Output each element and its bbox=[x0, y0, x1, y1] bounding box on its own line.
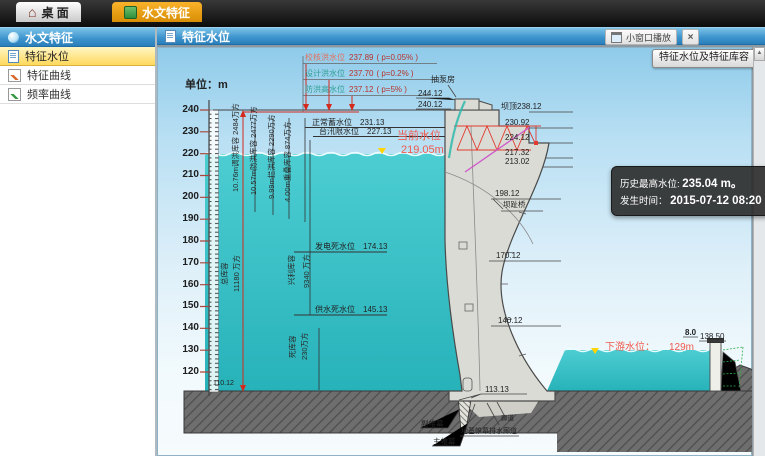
downstream-name: 下游水位： bbox=[605, 342, 655, 353]
level-value: 237.12 bbox=[349, 85, 373, 94]
app-window: ⌂ 桌 面 水文特征 水文特征 特征水位 特征曲线 频率曲线 特征水位 bbox=[0, 0, 765, 456]
hydro-tab-icon bbox=[124, 6, 137, 19]
total-storage-value: 11180 万方 bbox=[233, 255, 242, 292]
level-p: ( p=0.2% ) bbox=[376, 69, 413, 78]
page-icon bbox=[8, 50, 19, 63]
level-value: 145.13 bbox=[363, 305, 387, 314]
scroll-up-icon[interactable]: ▲ bbox=[754, 47, 765, 61]
storage-col-label: 9.99m拦洪库容 2290万方 bbox=[268, 114, 277, 199]
history-max-value: 235.04 m。 bbox=[682, 178, 742, 190]
elevation-170: 170.12 bbox=[496, 252, 520, 260]
sidebar-item-label: 特征曲线 bbox=[27, 67, 71, 83]
axis-tick: 120 bbox=[173, 367, 199, 377]
level-name: 防洪高水位 bbox=[305, 85, 345, 94]
power-dead-level-row: 发电死水位174.13 bbox=[315, 243, 387, 251]
tab-desktop-label: 桌 面 bbox=[41, 4, 68, 21]
main-curtain-label: 主帷幕 bbox=[433, 438, 456, 446]
downstream-value: 129m bbox=[669, 342, 694, 353]
level-value: 237.70 bbox=[349, 69, 373, 78]
bridge-label: 坝趾桥 bbox=[503, 201, 526, 209]
level-name: 设计洪水位 bbox=[305, 69, 345, 78]
elevation-113: 113.13 bbox=[485, 386, 509, 394]
window-icon bbox=[611, 32, 622, 43]
reservoir-water bbox=[205, 154, 462, 391]
current-level-value: 219.05m bbox=[401, 145, 444, 156]
tail-gauge-top: 8.0 bbox=[685, 329, 696, 337]
drain-gallery-outline bbox=[463, 378, 472, 391]
top-tab-bar: ⌂ 桌 面 水文特征 bbox=[0, 0, 765, 27]
unit-label: 单位：m bbox=[185, 80, 228, 91]
benefit-storage-value: 9340 万方 bbox=[303, 254, 312, 288]
level-name: 供水死水位 bbox=[315, 305, 355, 314]
downstream-water bbox=[547, 350, 711, 391]
tab-hydro-label: 水文特征 bbox=[142, 4, 190, 21]
sidebar-item-water-levels[interactable]: 特征水位 bbox=[0, 47, 155, 66]
level-p: ( p=0.05% ) bbox=[376, 53, 418, 62]
total-storage-name: 总库容 bbox=[221, 263, 230, 286]
elevation-110: 110.12 bbox=[213, 380, 234, 387]
tab-hydro-features[interactable]: 水文特征 bbox=[112, 2, 202, 22]
level-value: 174.13 bbox=[363, 242, 387, 251]
axis-tick: 150 bbox=[173, 301, 199, 311]
axis-tick: 190 bbox=[173, 214, 199, 224]
sidebar-item-label: 特征水位 bbox=[25, 48, 69, 64]
storage-col-label: 4.00m重叠库容 874万方 bbox=[284, 122, 293, 202]
elevation-217: 217.32 bbox=[505, 149, 529, 157]
elevation-244: 244.12 bbox=[418, 90, 442, 98]
axis-tick: 170 bbox=[173, 258, 199, 268]
elevation-224: 224.12 bbox=[505, 134, 529, 142]
water-drop-icon bbox=[8, 32, 19, 43]
drain-gallery-label: 地基帷幕排水廊道 bbox=[461, 428, 517, 435]
axis-tick: 240 bbox=[173, 105, 199, 115]
sidebar: 水文特征 特征水位 特征曲线 频率曲线 bbox=[0, 27, 157, 456]
level-name: 台汛限水位 bbox=[319, 127, 359, 136]
level-name: 校核洪水位 bbox=[305, 53, 345, 62]
current-level-marker-icon bbox=[378, 148, 386, 154]
design-flood-level-row: 设计洪水位237.70( p=0.2% ) bbox=[305, 70, 414, 78]
main-panel: 特征水位 小窗口播放 × bbox=[157, 27, 765, 456]
mini-window-label: 小窗口播放 bbox=[626, 31, 671, 44]
current-level-label: 当前水位 bbox=[397, 131, 441, 142]
flood-limit-level-row: 台汛限水位227.13 bbox=[319, 128, 391, 136]
storage-col-label: 10.76m调洪库容 2484万方 bbox=[232, 103, 241, 192]
ruler-strip bbox=[210, 110, 219, 392]
elevation-140: 140.12 bbox=[498, 317, 522, 325]
check-flood-level-row: 校核洪水位237.89( p=0.05% ) bbox=[305, 54, 418, 62]
tail-gauge-level: 138.50 bbox=[700, 333, 724, 341]
flood-text-underlines bbox=[303, 56, 437, 112]
elevation-240: 240.12 bbox=[418, 101, 442, 109]
downstream-marker-icon bbox=[591, 348, 599, 354]
supply-dead-level-row: 供水死水位145.13 bbox=[315, 306, 387, 314]
elevation-230: 230.92 bbox=[505, 119, 529, 127]
tail-gauge-body bbox=[710, 342, 721, 391]
panel-title: 特征水位 bbox=[182, 28, 230, 45]
ground-hatched-right bbox=[557, 432, 752, 452]
flood-control-level-row: 防洪高水位237.12( p=5% ) bbox=[305, 86, 407, 94]
dead-storage-name: 死库容 bbox=[289, 336, 298, 359]
aux-curtain-label: 副帷幕 bbox=[421, 420, 444, 428]
axis-tick: 210 bbox=[173, 170, 199, 180]
home-icon: ⌂ bbox=[28, 5, 36, 19]
axis-tick: 220 bbox=[173, 149, 199, 159]
level-p: ( p=5% ) bbox=[376, 85, 406, 94]
vertical-scrollbar[interactable]: ▲ bbox=[753, 47, 765, 456]
level-name: 发电死水位 bbox=[315, 242, 355, 251]
axis-tick: 130 bbox=[173, 345, 199, 355]
sidebar-title: 水文特征 bbox=[25, 29, 73, 46]
line-chart-icon bbox=[8, 69, 21, 82]
axis-tick: 160 bbox=[173, 280, 199, 290]
storage-col-label: 10.57m防洪库容 2477万方 bbox=[250, 106, 259, 195]
history-time-value: 2015-07-12 08:20 bbox=[670, 195, 761, 207]
elevation-198: 198.12 bbox=[495, 190, 519, 198]
elevation-213: 213.02 bbox=[505, 158, 529, 166]
pump-house-block bbox=[455, 99, 492, 110]
axis-tick: 230 bbox=[173, 127, 199, 137]
sidebar-item-frequency-curve[interactable]: 频率曲线 bbox=[0, 85, 155, 104]
level-value: 237.89 bbox=[349, 53, 373, 62]
tab-desktop[interactable]: ⌂ 桌 面 bbox=[16, 2, 81, 22]
axis-tick: 200 bbox=[173, 192, 199, 202]
history-time-label: 发生时间： bbox=[620, 196, 668, 207]
gallery-label: 廊道 bbox=[501, 416, 514, 423]
dead-storage-value: 230万方 bbox=[301, 332, 310, 360]
axis-tick: 140 bbox=[173, 323, 199, 333]
dam-schematic bbox=[157, 47, 752, 456]
crane-hook bbox=[534, 141, 538, 145]
doc-icon bbox=[165, 30, 176, 43]
green-chart-icon bbox=[8, 88, 21, 101]
close-icon[interactable]: × bbox=[682, 29, 699, 45]
downstream-level-label: 下游水位：129m bbox=[605, 343, 694, 353]
panel-header: 特征水位 小窗口播放 × bbox=[157, 27, 765, 45]
sidebar-item-feature-curve[interactable]: 特征曲线 bbox=[0, 66, 155, 85]
level-value: 227.13 bbox=[367, 127, 391, 136]
pump-house-label: 抽泵房 bbox=[431, 76, 455, 84]
sidebar-header: 水文特征 bbox=[0, 27, 155, 47]
axis-tick: 180 bbox=[173, 236, 199, 246]
history-max-label: 历史最高水位: bbox=[620, 179, 680, 190]
level-name: 正常蓄水位 bbox=[312, 118, 352, 127]
mini-window-play-button[interactable]: 小窗口播放 bbox=[605, 29, 677, 45]
benefit-storage-name: 兴利库容 bbox=[288, 255, 297, 285]
sidebar-item-label: 频率曲线 bbox=[27, 86, 71, 102]
normal-level-row: 正常蓄水位231.13 bbox=[312, 119, 384, 127]
level-value: 231.13 bbox=[360, 118, 384, 127]
history-info-box: 历史最高水位: 235.04 m。 发生时间： 2015-07-12 08:20 bbox=[611, 166, 765, 216]
crest-label: 坝顶238.12 bbox=[501, 103, 541, 111]
